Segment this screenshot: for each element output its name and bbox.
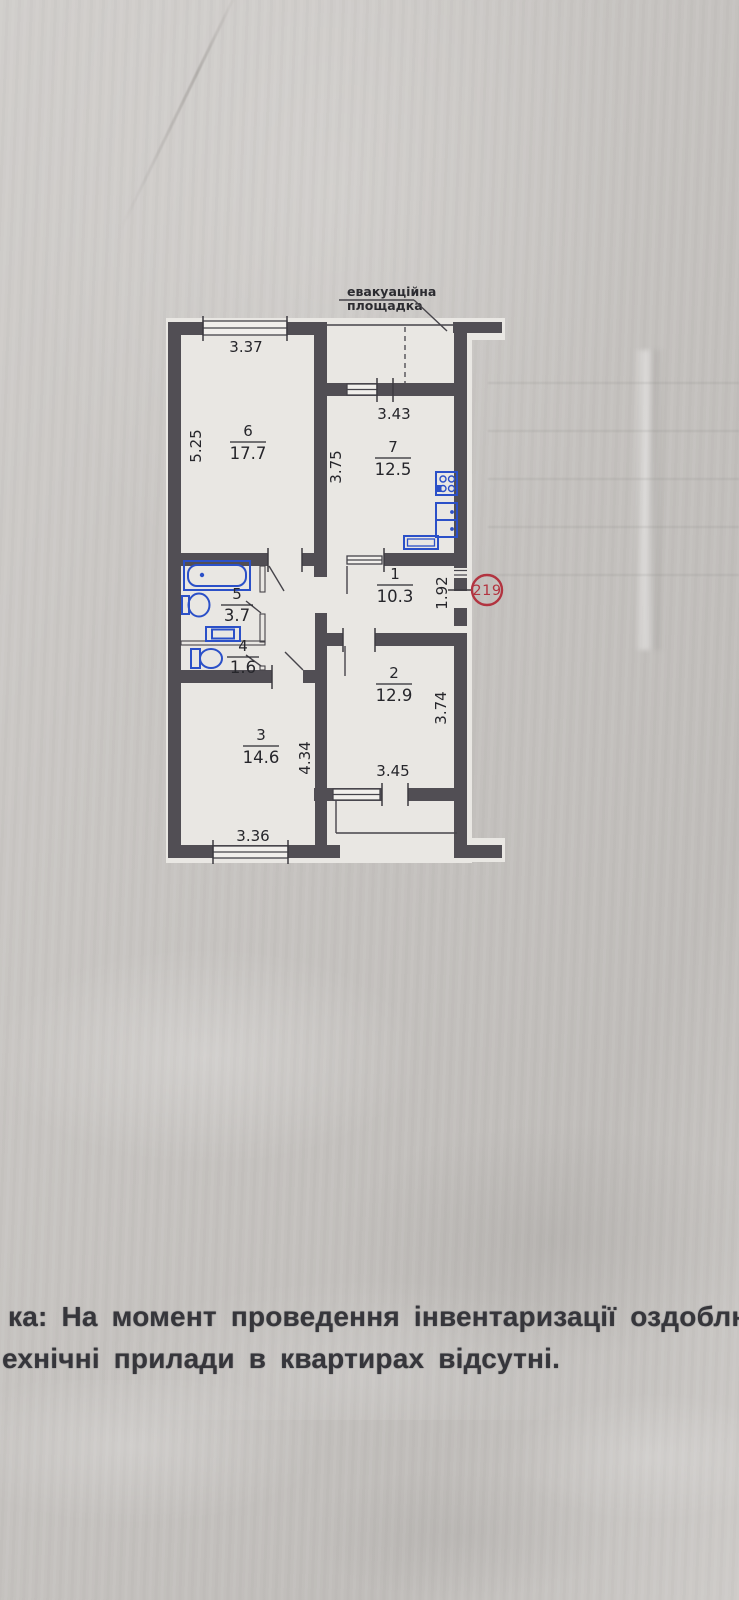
room-7-area: 12.5 — [375, 460, 412, 479]
scanned-floor-plan-photo: 6 17.7 7 12.5 1 10.3 2 12.9 3 — [0, 0, 739, 1600]
dim-kitchen-width: 3.43 — [377, 405, 410, 423]
dim-room2-width: 3.45 — [376, 762, 409, 780]
room-4-area: 1.6 — [230, 658, 256, 677]
apartment-number-stamp: 219 — [472, 575, 502, 605]
dim-room3-height: 4.34 — [296, 741, 314, 774]
room-2-area: 12.9 — [376, 686, 413, 705]
room-6-area: 17.7 — [230, 444, 267, 463]
dim-room6-height: 5.25 — [187, 429, 205, 462]
dim-kitchen-height: 3.75 — [327, 450, 345, 483]
room-4-number: 4 — [238, 637, 248, 655]
room-5-number: 5 — [232, 585, 242, 603]
room-2-number: 2 — [389, 664, 399, 682]
room-1-area: 10.3 — [377, 587, 414, 606]
room-1-number: 1 — [390, 565, 400, 583]
room-6-number: 6 — [243, 422, 253, 440]
room-5-area: 3.7 — [224, 606, 250, 625]
note-line-2: ехнічні прилади в квартирах відсутні. — [2, 1338, 739, 1380]
apartment-number: 219 — [472, 583, 501, 599]
evacuation-label-line1: евакуаційна — [347, 284, 436, 299]
room-7-number: 7 — [388, 438, 398, 456]
room-3-area: 14.6 — [243, 748, 280, 767]
room-3-number: 3 — [256, 726, 266, 744]
note-text: ка: На момент проведення інвентаризації … — [0, 1296, 739, 1380]
note-line-1: ка: На момент проведення інвентаризації … — [8, 1296, 739, 1338]
dim-hall-right: 1.92 — [433, 576, 451, 609]
dim-room3-width: 3.36 — [236, 827, 269, 845]
dim-room6-width: 3.37 — [229, 338, 262, 356]
dim-room2-height: 3.74 — [432, 691, 450, 724]
